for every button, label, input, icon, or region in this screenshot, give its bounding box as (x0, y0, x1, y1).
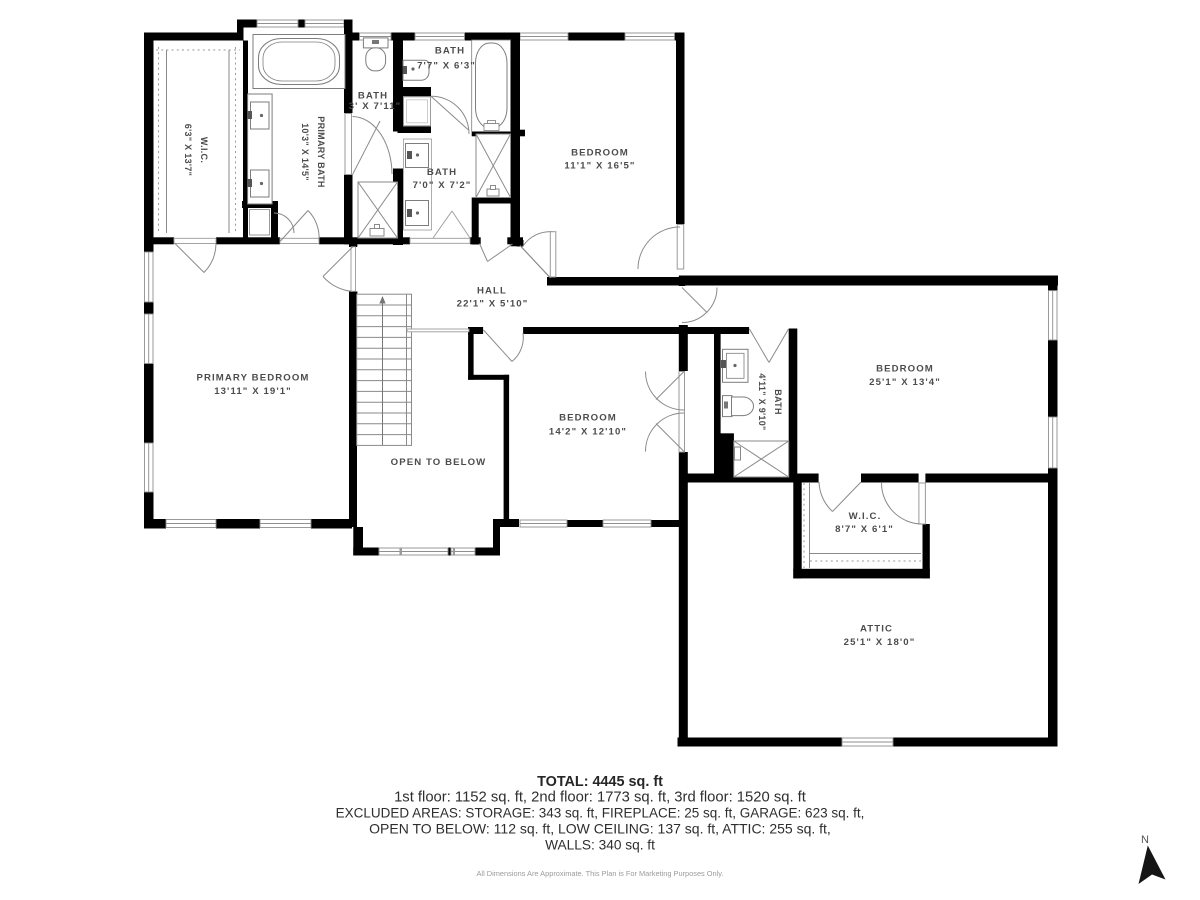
svg-text:BATH: BATH (773, 389, 783, 415)
svg-text:4'11" X 9'10": 4'11" X 9'10" (757, 373, 767, 430)
svg-text:BEDROOM: BEDROOM (559, 413, 617, 424)
svg-text:OPEN TO BELOW: 112 sq. ft, LOW: OPEN TO BELOW: 112 sq. ft, LOW CEILING: … (369, 821, 831, 837)
svg-text:14'2" X 12'10": 14'2" X 12'10" (549, 427, 627, 438)
svg-text:7'7" X 6'3": 7'7" X 6'3" (417, 61, 476, 72)
svg-text:HALL: HALL (477, 286, 507, 297)
svg-text:6'3" X 13'7": 6'3" X 13'7" (183, 124, 193, 176)
svg-text:BATH: BATH (427, 167, 457, 178)
svg-text:N: N (1141, 834, 1149, 846)
svg-text:WALLS: 340 sq. ft: WALLS: 340 sq. ft (545, 838, 655, 853)
svg-text:25'1" X 18'0": 25'1" X 18'0" (844, 637, 916, 648)
svg-text:BEDROOM: BEDROOM (876, 364, 934, 375)
svg-text:All Dimensions Are Approximate: All Dimensions Are Approximate. This Pla… (477, 869, 724, 878)
svg-text:OPEN TO BELOW: OPEN TO BELOW (391, 457, 487, 468)
svg-text:TOTAL: 4445 sq. ft: TOTAL: 4445 sq. ft (537, 774, 663, 790)
svg-text:EXCLUDED AREAS: STORAGE: 343 s: EXCLUDED AREAS: STORAGE: 343 sq. ft, FIR… (336, 806, 865, 821)
svg-text:22'1" X 5'10": 22'1" X 5'10" (457, 299, 529, 310)
svg-text:BEDROOM: BEDROOM (571, 148, 629, 159)
svg-text:13'11" X 19'1": 13'11" X 19'1" (214, 386, 292, 397)
svg-text:11'1" X 16'5": 11'1" X 16'5" (564, 161, 635, 172)
svg-text:7'0" X 7'2": 7'0" X 7'2" (413, 180, 472, 191)
svg-text:1st floor: 1152 sq. ft, 2nd fl: 1st floor: 1152 sq. ft, 2nd floor: 1773 … (394, 790, 806, 806)
svg-text:8'7" X 6'1": 8'7" X 6'1" (835, 524, 894, 535)
svg-text:25'1" X 13'4": 25'1" X 13'4" (869, 377, 941, 388)
svg-text:PRIMARY BEDROOM: PRIMARY BEDROOM (197, 373, 310, 384)
svg-text:W.I.C.: W.I.C. (199, 137, 209, 163)
svg-text:PRIMARY BATH: PRIMARY BATH (316, 116, 326, 187)
svg-text:W.I.C.: W.I.C. (849, 511, 882, 522)
svg-text:10'3" X 14'5": 10'3" X 14'5" (300, 123, 310, 181)
svg-text:3' X 7'11": 3' X 7'11" (349, 101, 402, 112)
svg-text:ATTIC: ATTIC (860, 624, 893, 635)
svg-text:BATH: BATH (358, 91, 388, 102)
svg-text:BATH: BATH (435, 46, 465, 57)
